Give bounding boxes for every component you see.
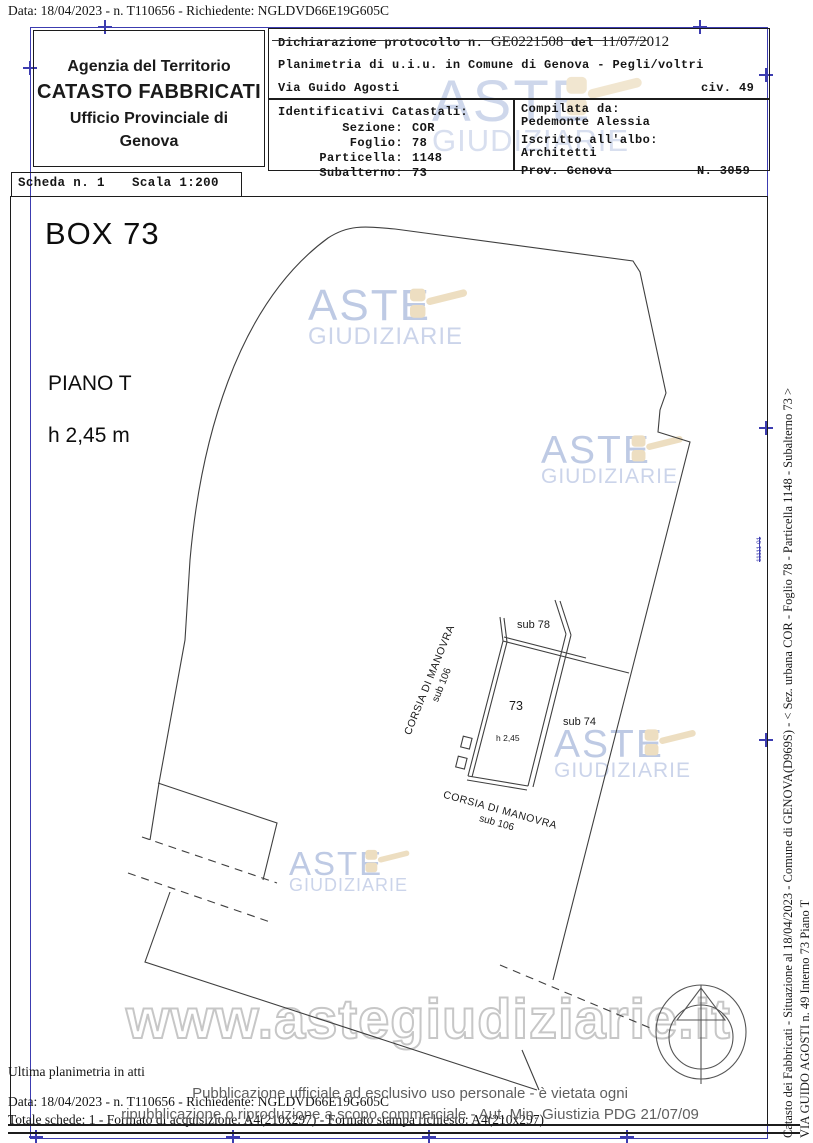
civic-number: civ. 49 xyxy=(701,81,754,95)
divider xyxy=(269,98,769,100)
street-line: Via Guido Agosti xyxy=(278,81,400,95)
footer-rule xyxy=(8,1124,800,1126)
albo-label: Iscritto all'albo: xyxy=(521,133,658,147)
agency-line2: CATASTO FABBRICATI xyxy=(34,78,264,107)
north-arrow-icon xyxy=(656,985,746,1084)
protocol-number: GE0221508 xyxy=(491,34,564,50)
identifier-row: Subalterno:73 xyxy=(271,166,427,180)
document-top-line: Data: 18/04/2023 - n. T110656 - Richiede… xyxy=(8,3,389,19)
compiler-label: Compilata da: xyxy=(521,102,620,116)
label-unit-height: h 2,45 xyxy=(496,733,520,743)
side-caption-line1: Catasto dei Fabbricati - Situazione al 1… xyxy=(781,388,796,1138)
plan-outer-boundary xyxy=(150,227,690,980)
footer-rule xyxy=(8,1132,800,1134)
label-sub78: sub 78 xyxy=(517,619,550,631)
protocol-del: del xyxy=(571,36,594,50)
agency-box: Agenzia del Territorio CATASTO FABBRICAT… xyxy=(33,30,265,167)
edge-code: 11111 01 xyxy=(756,537,763,562)
label-sub74: sub 74 xyxy=(563,716,596,728)
footer-ultima: Ultima planimetria in atti xyxy=(8,1064,145,1080)
sheet-info-box: Scheda n. 1 Scala 1:200 xyxy=(11,172,242,197)
protocol-date: 11/07/2012 xyxy=(601,34,669,50)
plan-floor-label: PIANO T xyxy=(48,372,132,396)
plan-height-label: h 2,45 m xyxy=(48,424,130,448)
compiler-prov: Prov. Genova xyxy=(521,164,612,178)
identifier-row: Sezione:COR xyxy=(271,121,435,135)
protocol-label: Dichiarazione protocollo n. xyxy=(278,36,483,50)
agency-line1: Agenzia del Territorio xyxy=(34,55,264,78)
footer-publication-line2: ripubblicazione o riproduzione a scopo c… xyxy=(40,1106,780,1123)
sheet-number: Scheda n. 1 xyxy=(18,176,105,190)
identifier-row: Particella:1148 xyxy=(271,151,442,165)
agency-line4: Genova xyxy=(34,130,264,153)
planimetria-line: Planimetria di u.i.u. in Comune di Genov… xyxy=(278,58,704,72)
protocol-row: Dichiarazione protocollo n. GE0221508 de… xyxy=(278,34,669,51)
albo-value: Architetti xyxy=(521,146,597,160)
identifier-row: Foglio:78 xyxy=(271,136,427,150)
scale-label: Scala 1:200 xyxy=(132,176,219,190)
compiler-number: N. 3059 xyxy=(697,164,750,178)
declaration-box: Dichiarazione protocollo n. GE0221508 de… xyxy=(268,28,770,171)
scan-artifact-line xyxy=(272,40,648,41)
divider xyxy=(513,98,515,170)
document-page: Data: 18/04/2023 - n. T110656 - Richiede… xyxy=(0,0,813,1143)
identifiers-title: Identificativi Catastali: xyxy=(278,105,468,119)
plan-box-title: BOX 73 xyxy=(45,216,160,252)
label-unit-number: 73 xyxy=(509,699,523,713)
floor-plan-drawing: sub 78 73 h 2,45 sub 74 CORSIA DI MANOVR… xyxy=(10,196,766,1123)
footer-publication-line1: Pubblicazione ufficiale ad esclusivo uso… xyxy=(40,1085,780,1102)
agency-line3: Ufficio Provinciale di xyxy=(34,107,264,130)
compiler-name: Pedemonte Alessia xyxy=(521,115,650,129)
side-caption-line2: VIA GUIDO AGOSTI n. 49 Interno 73 Piano … xyxy=(798,900,813,1138)
